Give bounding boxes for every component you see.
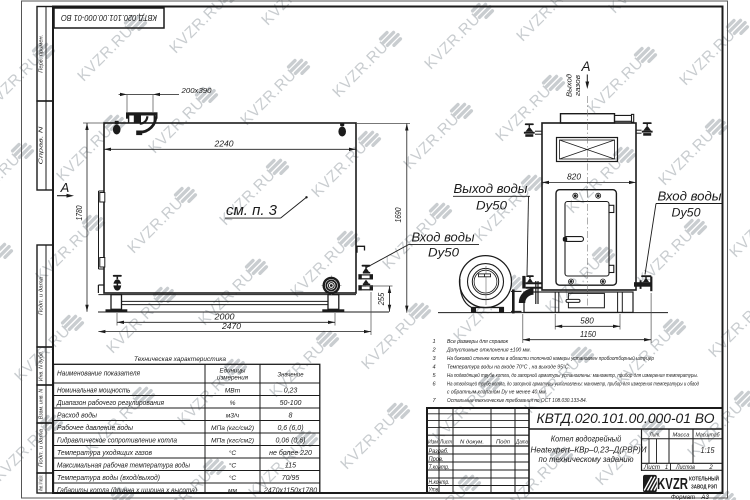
- svg-text:Максимальная рабочая температу: Максимальная рабочая температура воды: [57, 461, 191, 469]
- svg-text:КВТД.020.101.00.000-01 ВО: КВТД.020.101.00.000-01 ВО: [60, 13, 157, 22]
- svg-text:2000: 2000: [213, 312, 235, 321]
- svg-text:Гидравлическое сопротивление к: Гидравлическое сопротивление котла: [57, 436, 177, 444]
- svg-text:МВт: МВт: [225, 387, 241, 394]
- svg-text:Н.контр.: Н.контр.: [429, 480, 450, 486]
- svg-text:N докум.: N докум.: [460, 440, 484, 446]
- svg-text:200х390: 200х390: [180, 86, 212, 95]
- svg-text:Dy50: Dy50: [672, 206, 701, 220]
- svg-text:4: 4: [432, 364, 435, 370]
- svg-text:А: А: [60, 180, 70, 195]
- svg-text:1150: 1150: [580, 330, 597, 339]
- svg-text:газов: газов: [573, 75, 582, 96]
- svg-text:70/95: 70/95: [282, 475, 300, 482]
- svg-text:0,06 (0,6): 0,06 (0,6): [276, 437, 306, 444]
- svg-text:Температура воды (вход/выход): Температура воды (вход/выход): [57, 474, 160, 482]
- svg-text:0,23: 0,23: [284, 387, 298, 394]
- svg-text:Техническая характеристика: Техническая характеристика: [134, 356, 226, 363]
- svg-text:Лист: Лист: [439, 440, 453, 446]
- svg-text:Единицы: Единицы: [220, 366, 246, 374]
- svg-text:2470х1150х1780: 2470х1150х1780: [263, 487, 317, 494]
- svg-text:ЗАВОД РЭП: ЗАВОД РЭП: [691, 484, 717, 490]
- svg-text:0,6 (6,0): 0,6 (6,0): [277, 425, 303, 432]
- svg-text:Dy50: Dy50: [476, 199, 507, 213]
- svg-text:Подп: Подп: [496, 440, 510, 446]
- svg-text:Габариты котла (длинна х ширин: Габариты котла (длинна х ширина х высота…: [57, 486, 197, 494]
- svg-text:Перв. примен.: Перв. примен.: [39, 35, 45, 73]
- svg-text:Вход воды: Вход воды: [412, 230, 475, 245]
- svg-text:1: 1: [432, 339, 435, 345]
- svg-text:измерения: измерения: [217, 375, 249, 382]
- svg-text:Котел водогрейный: Котел водогрейный: [551, 435, 622, 444]
- svg-text:с обратным клапаном Dу не мен: с обратным клапаном Dу не менее 40 мм.: [447, 390, 547, 396]
- svg-text:Масштаб: Масштаб: [696, 433, 721, 439]
- svg-text:мм: мм: [228, 487, 238, 494]
- svg-text:Номинальная мощность: Номинальная мощность: [57, 387, 131, 394]
- svg-text:Dy50: Dy50: [428, 246, 459, 260]
- svg-text:°С: °С: [229, 449, 237, 457]
- svg-text:Изм: Изм: [428, 440, 438, 446]
- svg-text:Выход воды: Выход воды: [454, 181, 528, 196]
- svg-text:1690: 1690: [394, 207, 403, 222]
- svg-text:не более 220: не более 220: [269, 449, 312, 457]
- svg-text:Все размеры для справок: Все размеры для справок: [447, 339, 508, 345]
- svg-text:Рабочее давление воды: Рабочее давление воды: [57, 424, 134, 432]
- svg-text:Диапазон рабочего регулировани: Диапазон рабочего регулирования: [56, 399, 164, 407]
- svg-text:Значение: Значение: [278, 372, 304, 379]
- svg-text:Дата: Дата: [515, 440, 528, 446]
- svg-text:На боковой стенке котла в обла: На боковой стенке котла в области топочн…: [447, 355, 654, 362]
- svg-text:Инв. N дубл.: Инв. N дубл.: [39, 351, 45, 381]
- svg-text:°С: °С: [229, 461, 237, 469]
- svg-text:Инв. N подл.: Инв. N подл.: [39, 475, 45, 491]
- svg-text:1:15: 1:15: [701, 445, 715, 455]
- svg-text:Допустимые отклонения ±100 мм: Допустимые отклонения ±100 мм.: [446, 348, 531, 354]
- svg-text:см. п. 3: см. п. 3: [226, 202, 278, 219]
- svg-text:Расход воды: Расход воды: [57, 411, 98, 419]
- svg-text:Подп. и дата: Подп. и дата: [39, 429, 45, 467]
- svg-text:МПа (кгс/см2): МПа (кгс/см2): [211, 437, 254, 444]
- svg-text:Наименование показателя: Наименование показателя: [57, 371, 140, 378]
- svg-text:м3/ч: м3/ч: [226, 412, 240, 419]
- svg-text:Формат: Формат: [671, 494, 696, 500]
- svg-text:Температура воды на входе 70°: Температура воды на входе 70°С , на выхо…: [447, 364, 570, 370]
- svg-text:8: 8: [289, 412, 293, 419]
- svg-text:Heatexpert–КВр–0,23–Д(РВР)И: Heatexpert–КВр–0,23–Д(РВР)И: [531, 446, 647, 455]
- svg-text:1780: 1780: [75, 205, 84, 220]
- svg-text:Остальные технические требован: Остальные технические требования по ОСТ …: [447, 398, 587, 404]
- svg-text:50-100: 50-100: [280, 400, 302, 407]
- svg-text:Пров.: Пров.: [429, 457, 444, 463]
- svg-text:Масса: Масса: [673, 433, 690, 439]
- svg-text:820: 820: [567, 173, 582, 182]
- svg-text:2: 2: [708, 465, 713, 471]
- svg-text:580: 580: [580, 317, 594, 326]
- svg-text:°С: °С: [229, 474, 237, 482]
- svg-text:Т.контр.: Т.контр.: [429, 465, 450, 471]
- svg-text:Вход воды: Вход воды: [658, 188, 722, 203]
- svg-text:KVZR: KVZR: [657, 476, 688, 493]
- svg-text:А3: А3: [700, 494, 709, 500]
- svg-text:2470: 2470: [221, 322, 242, 331]
- svg-text:Лист: Лист: [643, 465, 660, 471]
- svg-text:А: А: [580, 59, 590, 74]
- svg-text:Лит.: Лит.: [649, 433, 661, 439]
- svg-text:115: 115: [285, 462, 296, 469]
- svg-text:Температура уходящих газов: Температура уходящих газов: [57, 449, 152, 457]
- svg-text:На отводящей трубе котла, до з: На отводящей трубе котла, до запорной ар…: [447, 380, 699, 387]
- svg-text:Листов: Листов: [675, 465, 695, 471]
- svg-text:Справ. N: Справ. N: [39, 126, 45, 164]
- svg-text:МПа (кгс/см2): МПа (кгс/см2): [211, 425, 254, 432]
- svg-text:Подп. и дата: Подп. и дата: [39, 277, 45, 315]
- svg-text:255: 255: [377, 292, 386, 306]
- svg-text:Утв.: Утв.: [428, 487, 440, 493]
- svg-text:Разраб.: Разраб.: [429, 449, 449, 455]
- svg-text:1: 1: [665, 465, 668, 471]
- svg-text:Взам. инв. N: Взам. инв. N: [39, 389, 45, 420]
- svg-text:КОТЕЛЬНЫЙ: КОТЕЛЬНЫЙ: [689, 475, 719, 483]
- svg-text:по техническому заданию: по техническому заданию: [539, 455, 634, 464]
- svg-text:КВТД.020.101.00.000-01 ВО: КВТД.020.101.00.000-01 ВО: [537, 411, 716, 426]
- svg-text:2240: 2240: [213, 140, 234, 149]
- svg-text:%: %: [230, 400, 236, 407]
- svg-text:На подводящей трубе котла, до: На подводящей трубе котла, до запорной а…: [447, 372, 698, 379]
